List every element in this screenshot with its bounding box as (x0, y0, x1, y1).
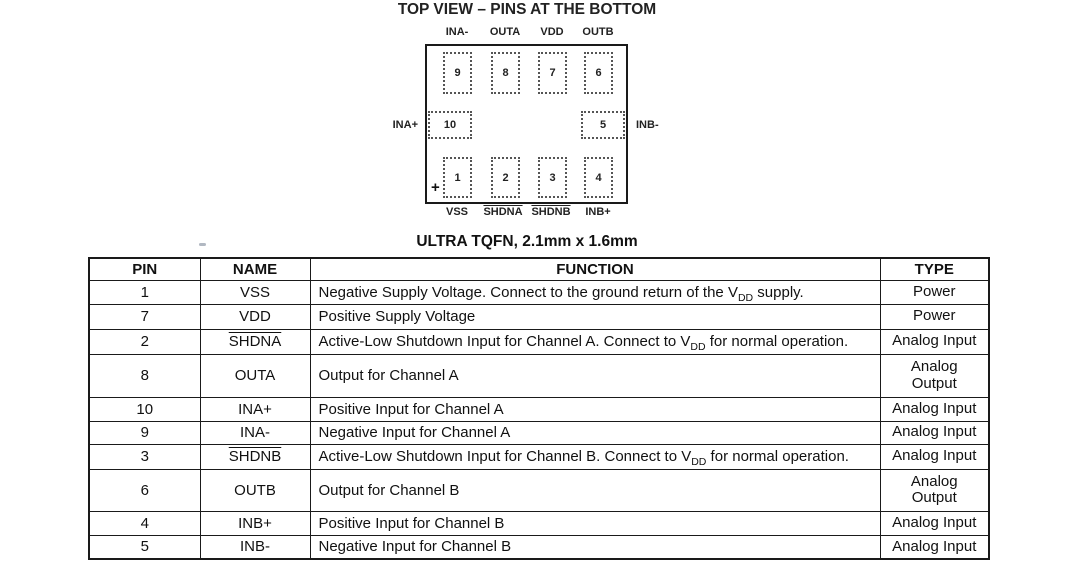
pin-pad-6: 6 (584, 52, 613, 94)
table-row: 8 OUTA Output for Channel A Analog Outpu… (89, 354, 989, 397)
pin-label-inb-minus: INB- (636, 119, 696, 131)
type-cell: Analog Input (880, 397, 989, 421)
pin-label-outb: OUTB (558, 26, 638, 38)
table-row: 10 INA+ Positive Input for Channel A Ana… (89, 397, 989, 421)
name-cell: OUTB (200, 469, 310, 511)
table-row: 1 VSS Negative Supply Voltage. Connect t… (89, 280, 989, 304)
function-cell: Output for Channel B (310, 469, 880, 511)
name-cell: VSS (200, 280, 310, 304)
function-cell: Negative Supply Voltage. Connect to the … (310, 280, 880, 304)
header-name: NAME (200, 258, 310, 280)
type-cell: Analog Input (880, 535, 989, 559)
header-pin: PIN (89, 258, 200, 280)
table-row: 2 SHDNA Active-Low Shutdown Input for Ch… (89, 329, 989, 354)
pin-pad-2: 2 (491, 157, 520, 198)
function-cell: Negative Input for Channel A (310, 421, 880, 444)
table-row: 6 OUTB Output for Channel B Analog Outpu… (89, 469, 989, 511)
pin-pad-3: 3 (538, 157, 567, 198)
name-cell: SHDNA (200, 329, 310, 354)
pin-label-ina-plus: INA+ (358, 119, 418, 131)
package-outline: 9 8 7 6 10 5 1 2 3 4 + (425, 44, 628, 204)
function-cell: Active-Low Shutdown Input for Channel B.… (310, 444, 880, 469)
function-cell: Active-Low Shutdown Input for Channel A.… (310, 329, 880, 354)
type-cell: Analog Input (880, 511, 989, 535)
name-cell: SHDNB (200, 444, 310, 469)
pin-pad-9: 9 (443, 52, 472, 94)
table-row: 3 SHDNB Active-Low Shutdown Input for Ch… (89, 444, 989, 469)
pin-cell: 6 (89, 469, 200, 511)
function-cell: Positive Supply Voltage (310, 304, 880, 329)
header-type: TYPE (880, 258, 989, 280)
function-cell: Positive Input for Channel A (310, 397, 880, 421)
diagram-title: TOP VIEW – PINS AT THE BOTTOM (287, 1, 767, 19)
pin-pad-4: 4 (584, 157, 613, 198)
stray-mark (199, 243, 206, 246)
pin-cell: 3 (89, 444, 200, 469)
function-cell: Output for Channel A (310, 354, 880, 397)
type-cell: Power (880, 304, 989, 329)
pin-pad-1: 1 (443, 157, 472, 198)
pin-pad-10: 10 (428, 111, 472, 139)
pin-label-inb-plus: INB+ (558, 206, 638, 218)
type-cell: Power (880, 280, 989, 304)
table-row: 4 INB+ Positive Input for Channel B Anal… (89, 511, 989, 535)
name-cell: INA- (200, 421, 310, 444)
pin-cell: 10 (89, 397, 200, 421)
header-function: FUNCTION (310, 258, 880, 280)
table-row: 7 VDD Positive Supply Voltage Power (89, 304, 989, 329)
pin1-plus-marker: + (431, 179, 440, 196)
name-cell: INA+ (200, 397, 310, 421)
name-cell: INB+ (200, 511, 310, 535)
name-cell: OUTA (200, 354, 310, 397)
type-cell: Analog Output (880, 469, 989, 511)
pin-cell: 1 (89, 280, 200, 304)
type-cell: Analog Output (880, 354, 989, 397)
function-cell: Negative Input for Channel B (310, 535, 880, 559)
package-subtitle: ULTRA TQFN, 2.1mm x 1.6mm (287, 233, 767, 251)
pin-pad-8: 8 (491, 52, 520, 94)
name-cell: VDD (200, 304, 310, 329)
pin-cell: 5 (89, 535, 200, 559)
type-cell: Analog Input (880, 421, 989, 444)
pin-cell: 8 (89, 354, 200, 397)
name-cell: INB- (200, 535, 310, 559)
pin-pad-7: 7 (538, 52, 567, 94)
pin-pad-5: 5 (581, 111, 625, 139)
pin-description-table: PIN NAME FUNCTION TYPE 1 VSS Negative Su… (88, 257, 990, 560)
datasheet-page: TOP VIEW – PINS AT THE BOTTOM INA- OUTA … (0, 0, 1080, 561)
table-header-row: PIN NAME FUNCTION TYPE (89, 258, 989, 280)
pin-cell: 4 (89, 511, 200, 535)
pin-cell: 2 (89, 329, 200, 354)
pin-cell: 7 (89, 304, 200, 329)
type-cell: Analog Input (880, 329, 989, 354)
type-cell: Analog Input (880, 444, 989, 469)
table-row: 9 INA- Negative Input for Channel A Anal… (89, 421, 989, 444)
table-row: 5 INB- Negative Input for Channel B Anal… (89, 535, 989, 559)
pin-cell: 9 (89, 421, 200, 444)
function-cell: Positive Input for Channel B (310, 511, 880, 535)
